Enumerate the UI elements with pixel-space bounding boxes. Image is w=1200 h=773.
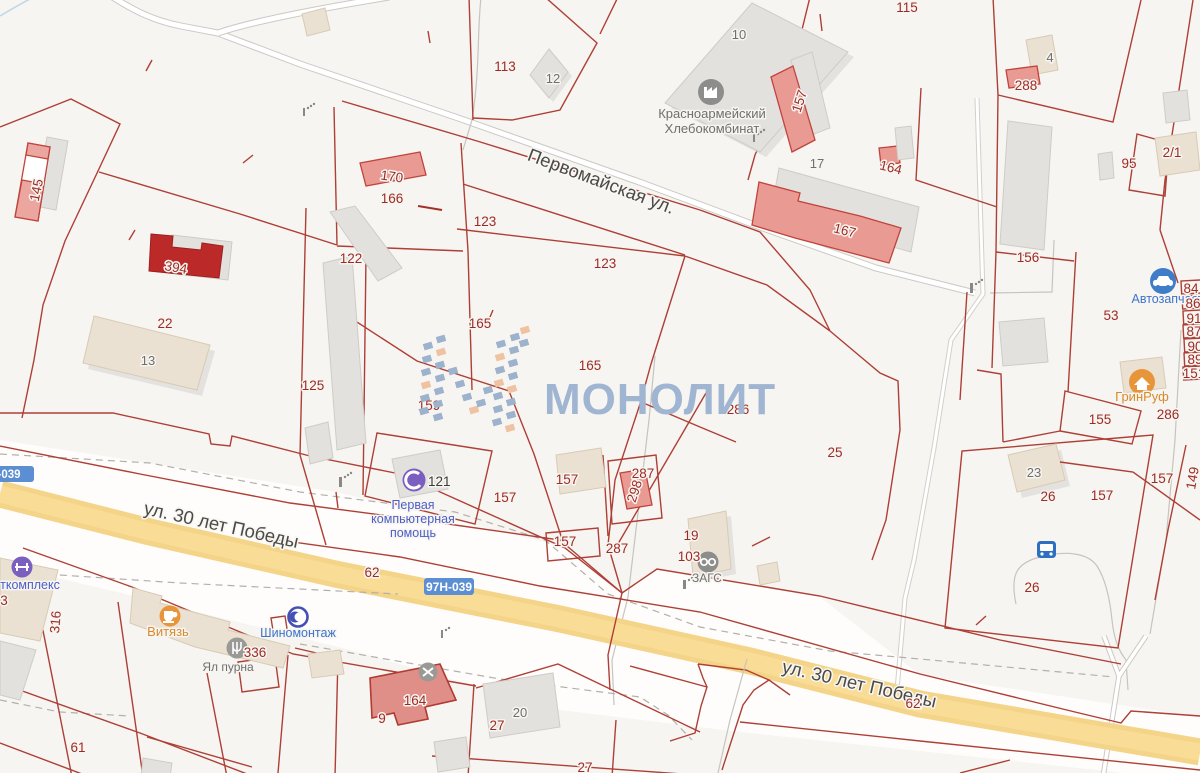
svg-text:121: 121 <box>428 474 451 489</box>
svg-text:62: 62 <box>364 565 379 580</box>
svg-text:166: 166 <box>381 191 404 206</box>
svg-text:3: 3 <box>0 593 8 608</box>
svg-text:155: 155 <box>1089 412 1112 427</box>
svg-text:22: 22 <box>157 316 172 331</box>
svg-text:Красноармейский: Красноармейский <box>658 106 766 121</box>
svg-text:113: 113 <box>494 59 516 74</box>
svg-text:123: 123 <box>594 256 617 271</box>
svg-text:ГринРуф: ГринРуф <box>1115 389 1169 404</box>
svg-text:122: 122 <box>340 251 363 266</box>
svg-text:156: 156 <box>1017 250 1040 265</box>
svg-text:157: 157 <box>1151 471 1174 486</box>
svg-text:97Н-039: 97Н-039 <box>426 580 472 594</box>
svg-text:103: 103 <box>678 549 701 564</box>
svg-text:149: 149 <box>1183 466 1200 491</box>
svg-text:26: 26 <box>1024 580 1039 595</box>
svg-text:25: 25 <box>827 445 842 460</box>
svg-text:115: 115 <box>896 0 918 15</box>
svg-text:86: 86 <box>1185 296 1200 311</box>
svg-text:164: 164 <box>404 693 427 708</box>
svg-text:23: 23 <box>1027 465 1041 480</box>
svg-text:157: 157 <box>554 534 577 549</box>
svg-text:27: 27 <box>577 760 592 773</box>
svg-text:4: 4 <box>1046 50 1053 65</box>
svg-text:286: 286 <box>1157 407 1180 422</box>
svg-text:12: 12 <box>546 71 560 86</box>
svg-text:компьютерная: компьютерная <box>371 512 455 526</box>
svg-text:84: 84 <box>1183 281 1199 296</box>
svg-text:62: 62 <box>905 696 920 711</box>
svg-text:Шиномонтаж: Шиномонтаж <box>260 626 336 640</box>
svg-text:Ял пурна: Ял пурна <box>202 660 254 674</box>
svg-text:Первая: Первая <box>391 498 434 512</box>
svg-text:288: 288 <box>1015 78 1038 93</box>
svg-text:157: 157 <box>494 490 517 505</box>
svg-text:Витязь: Витязь <box>147 624 189 639</box>
svg-text:165: 165 <box>469 316 492 331</box>
svg-text:287: 287 <box>632 466 655 481</box>
svg-text:125: 125 <box>302 378 325 393</box>
svg-text:61: 61 <box>70 740 85 755</box>
svg-text:165: 165 <box>579 358 602 373</box>
svg-text:27: 27 <box>489 718 504 733</box>
svg-text:87: 87 <box>1186 324 1200 339</box>
svg-text:19: 19 <box>683 528 698 543</box>
svg-text:26: 26 <box>1040 489 1055 504</box>
svg-text:287: 287 <box>606 541 629 556</box>
svg-text:МОНОЛИТ: МОНОЛИТ <box>544 375 776 424</box>
svg-text:-039: -039 <box>0 469 21 481</box>
svg-text:336: 336 <box>244 645 267 660</box>
svg-text:ткомплекс: ткомплекс <box>0 578 60 592</box>
svg-text:151: 151 <box>1183 366 1200 381</box>
svg-text:10: 10 <box>732 27 746 42</box>
svg-text:13: 13 <box>141 353 155 368</box>
svg-text:316: 316 <box>47 610 64 634</box>
svg-text:170: 170 <box>380 168 404 186</box>
svg-text:123: 123 <box>474 214 497 229</box>
svg-text:ЗАГС: ЗАГС <box>692 571 722 585</box>
svg-text:20: 20 <box>513 705 527 720</box>
svg-text:157: 157 <box>1091 488 1114 503</box>
svg-text:89: 89 <box>1187 352 1200 367</box>
svg-text:157: 157 <box>556 472 579 487</box>
svg-text:17: 17 <box>810 156 824 171</box>
svg-text:95: 95 <box>1121 156 1136 171</box>
svg-text:Хлебокомбинат: Хлебокомбинат <box>665 121 760 136</box>
svg-text:помощь: помощь <box>390 526 436 540</box>
svg-text:53: 53 <box>1103 308 1118 323</box>
svg-text:9: 9 <box>378 711 386 726</box>
svg-text:2/1: 2/1 <box>1163 145 1182 160</box>
